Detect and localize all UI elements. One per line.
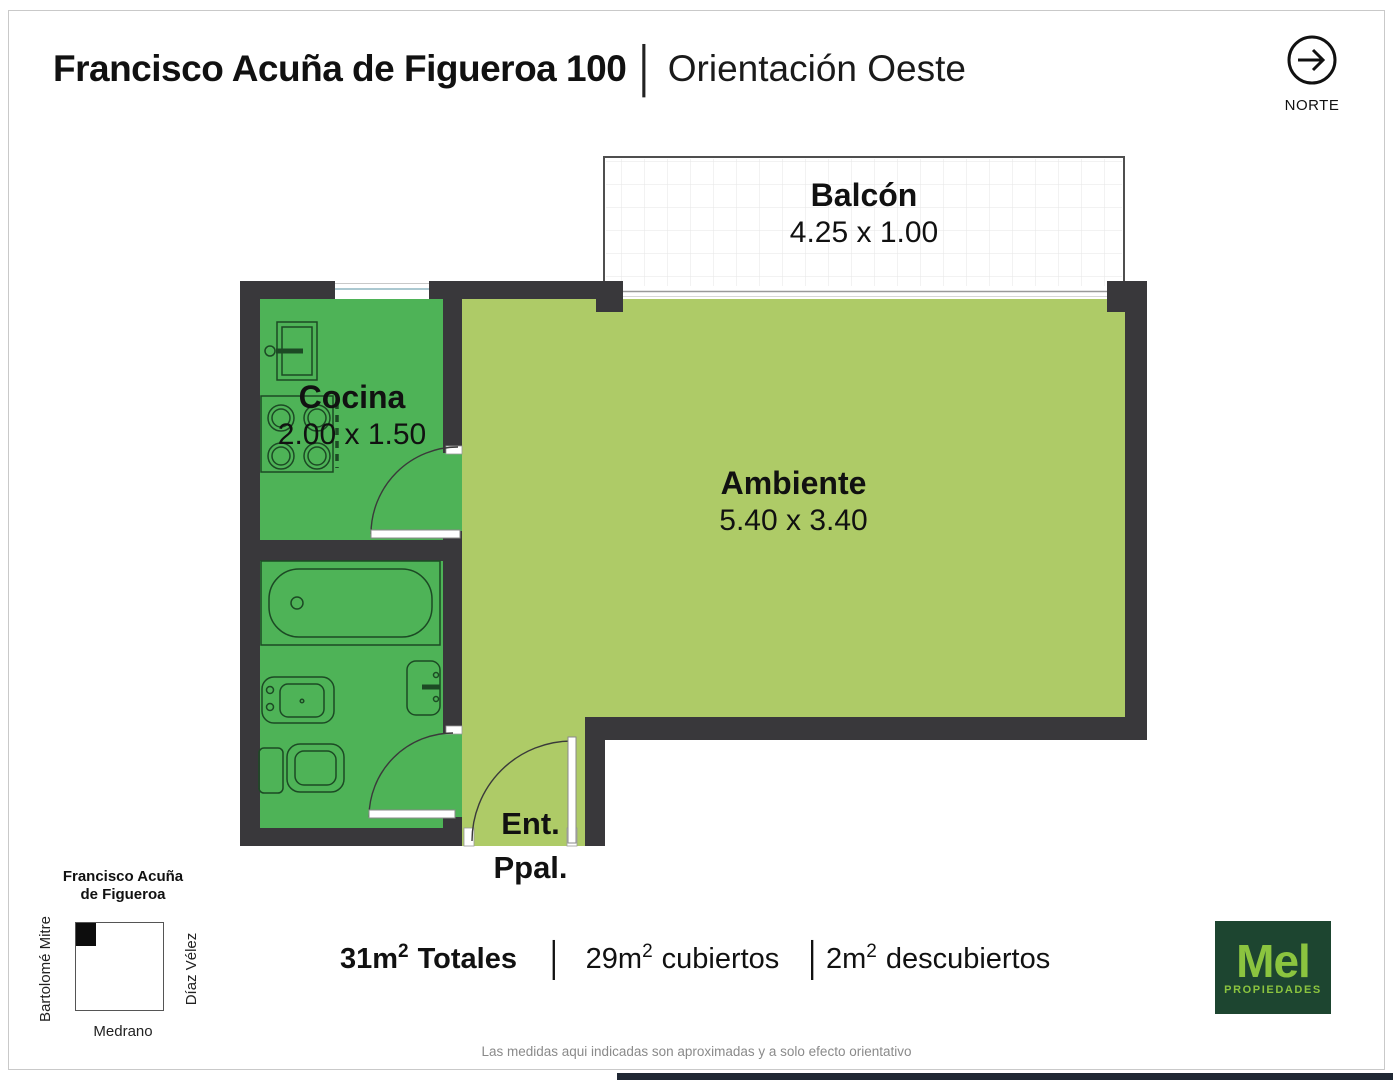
logo-subtitle: PROPIEDADES (1224, 984, 1322, 996)
total-area: 31m2Totales (340, 943, 517, 976)
entrance-line1: Ent. (438, 802, 623, 846)
main-room-label: Ambiente 5.40 x 3.40 (462, 464, 1125, 540)
street-left: Bartolomé Mitre (37, 894, 55, 1044)
street-right: Díaz Vélez (183, 894, 201, 1044)
balcony-dims: 4.25 x 1.00 (604, 214, 1124, 252)
areas-separator: │ (803, 940, 824, 978)
entrance-line2: Ppal. (438, 846, 623, 890)
main-room-floor (462, 299, 1125, 846)
uncovered-area: 2m2descubiertos (826, 943, 1050, 976)
kitchen-door-opening (443, 453, 462, 531)
balcony-window (623, 286, 1107, 299)
agency-logo: Mel PROPIEDADES (1215, 921, 1331, 1014)
areas-separator: │ (545, 940, 566, 978)
main-room-name: Ambiente (462, 464, 1125, 502)
location-minimap: Francisco Acuña de Figueroa Bartolomé Mi… (30, 868, 216, 1048)
bathroom-floor (260, 561, 443, 828)
bottom-edge-strip (617, 1073, 1393, 1080)
kitchen-window (335, 281, 429, 298)
areas-summary: 31m2Totales │ 29m2cubiertos │ 2m2descubi… (340, 938, 1050, 976)
main-room-dims: 5.40 x 3.40 (462, 502, 1125, 540)
block-square (75, 922, 164, 1011)
street-bottom: Medrano (48, 1023, 198, 1041)
balcony-name: Balcón (604, 176, 1124, 214)
floorplan-page: Francisco Acuña de Figueroa 100│Orientac… (0, 0, 1393, 1080)
entrance-label: Ent. Ppal. (438, 802, 623, 890)
property-marker (76, 923, 96, 946)
balcony-label: Balcón 4.25 x 1.00 (604, 176, 1124, 252)
disclaimer-text: Las medidas aqui indicadas son aproximad… (0, 1044, 1393, 1059)
covered-area: 29m2cubiertos (586, 943, 780, 976)
kitchen-dims: 2.00 x 1.50 (252, 416, 452, 454)
kitchen-label: Cocina 2.00 x 1.50 (252, 378, 452, 454)
kitchen-name: Cocina (252, 378, 452, 416)
minimap-title-line1: Francisco Acuña (30, 868, 216, 886)
logo-name: Mel (1236, 939, 1310, 983)
